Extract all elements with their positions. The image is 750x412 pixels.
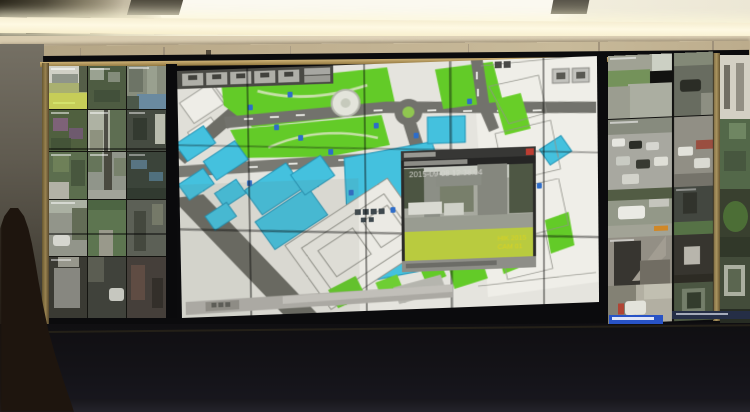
svg-text:HIK 2015: HIK 2015 (498, 235, 527, 243)
svg-text:CAM 01: CAM 01 (498, 243, 523, 251)
